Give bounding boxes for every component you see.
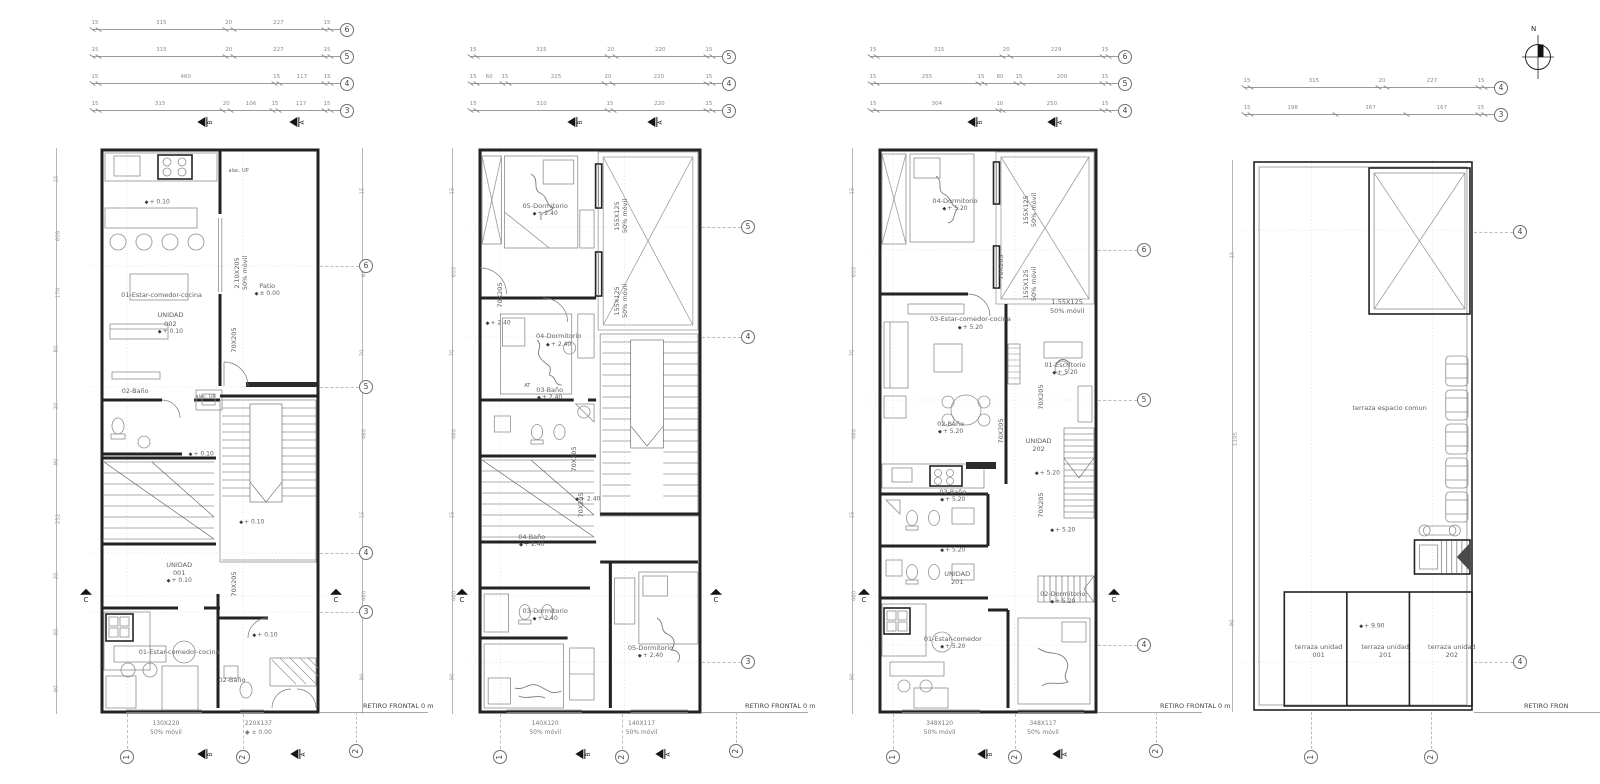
plan-text-label: ◆+ 0.10 — [252, 631, 277, 639]
grid-leader-line — [320, 266, 359, 267]
grid-bubble: 4 — [1118, 104, 1132, 118]
section-c-marker: C — [858, 589, 870, 604]
section-cut-marker: A — [647, 117, 662, 127]
grid-bubble: 4 — [1513, 225, 1527, 239]
section-cut-marker: A — [1052, 749, 1067, 759]
plan-text-label: ◆+ 0.10 — [145, 198, 170, 206]
plan-text-label: 70X205 — [997, 418, 1005, 443]
plan-text-label: 03-Estar-comedor-cocina◆+ 5.20 — [930, 316, 1011, 332]
section-c-marker: C — [1108, 589, 1120, 604]
grid-bubble: 4 — [1513, 655, 1527, 669]
plan-text-label: 04-Baño◆+ 2.40 — [518, 534, 545, 550]
plan-text-label: 03-Dormitorio◆+ 2.40 — [523, 607, 568, 623]
grid-leader-line — [1098, 645, 1137, 646]
grid-leader-line — [1311, 712, 1312, 749]
grid-bubble: 5 — [741, 220, 755, 234]
dimension-row: 15255158015200155 — [870, 74, 1108, 88]
retiro-frontal-label: RETIRO FRON — [1524, 702, 1568, 710]
grid-leader-line — [356, 712, 357, 743]
plan-text-label: 70X205 — [496, 283, 504, 308]
window-size-label: 130X22050% móvil — [150, 720, 182, 737]
grid-leader-line — [702, 337, 741, 338]
plan-text-label: terraza unidad001 — [1295, 643, 1343, 659]
lot-boundary-line — [1474, 712, 1600, 713]
grid-bubble: 1 — [886, 750, 900, 764]
plan-text-label: ◆+ 2.40 — [486, 320, 511, 328]
grid-bubble: 3 — [1494, 108, 1508, 122]
grid-bubble: 4 — [741, 330, 755, 344]
plan-text-label: 70X205 — [1037, 384, 1045, 409]
grid-bubble: 2 — [729, 744, 743, 758]
lot-boundary-line — [1098, 712, 1202, 713]
plan-text-label: 01-Escritorio◆+ 5.20 — [1044, 361, 1085, 377]
grid-leader-line — [702, 662, 741, 663]
grid-leader-line — [500, 714, 501, 749]
floor-plan-first-drawing — [478, 148, 702, 714]
plan-text-label: 02-Baño — [122, 387, 149, 395]
dimension-row: 1531015220153 — [470, 101, 712, 115]
plan-text-label: alac. UP — [196, 394, 216, 400]
section-cut-marker: B — [967, 117, 982, 127]
plan-text-label: UNIDAD002◆+ 0.10 — [157, 312, 183, 336]
window-size-label: 348X12050% móvil — [924, 720, 956, 737]
plan-text-label: terraza unidad202 — [1428, 643, 1476, 659]
lot-boundary-line — [320, 712, 428, 713]
plan-text-label: 04-Dormitorio◆+ 2.40 — [536, 333, 581, 349]
plan-text-label: ◆+ 0.10 — [189, 450, 214, 458]
lot-boundary-line — [702, 712, 808, 713]
window-size-label: 348X11750% móvil — [1027, 720, 1059, 737]
dimension-row: 1546015117154 — [92, 74, 330, 88]
plan-text-label: 155X12550% móvil — [613, 284, 629, 318]
grid-bubble: 3 — [340, 104, 354, 118]
grid-bubble: 3 — [359, 605, 373, 619]
grid-leader-line — [1098, 400, 1137, 401]
grid-bubble: 4 — [1137, 638, 1151, 652]
grid-bubble: 2 — [615, 750, 629, 764]
grid-leader-line — [1431, 712, 1432, 749]
plan-text-label: 04-Dormitorio◆+ 5.20 — [932, 197, 977, 213]
dimension-row: 15601522520220154 — [470, 74, 712, 88]
grid-bubble: 3 — [741, 655, 755, 669]
plan-text-label: alac. UP — [229, 168, 249, 174]
grid-bubble: 6 — [1137, 243, 1151, 257]
grid-bubble: 6 — [1118, 50, 1132, 64]
floor-plan-ground-drawing — [100, 148, 320, 714]
grid-leader-line — [243, 714, 244, 749]
grid-bubble: 2 — [236, 750, 250, 764]
plan-text-label: ◆+ 0.10 — [239, 518, 264, 526]
roof-plan: terraza espacio comun◆+ 9.90terraza unid… — [1252, 160, 1474, 712]
dimension-row: 153152010615117153 — [92, 101, 330, 115]
plan-text-label: 01-Estar-comedor◆+ 5.20 — [924, 635, 982, 651]
plan-text-label: 02-Baño — [219, 676, 246, 684]
plan-text-label: 1.55X12550% móvil — [1050, 298, 1084, 314]
plan-text-label: 02-Dormitorio◆+ 5.20 — [1040, 590, 1085, 606]
plan-text-label: ◆+ 5.20 — [1035, 470, 1060, 478]
retiro-frontal-label: RETIRO FRONTAL 0 m — [363, 702, 434, 710]
dimension-row: 1531520227154 — [1244, 78, 1484, 92]
plan-text-label: 155X12550% móvil — [613, 199, 629, 233]
grid-leader-line — [320, 387, 359, 388]
section-cut-marker: B — [977, 749, 992, 759]
grid-leader-line — [320, 612, 359, 613]
grid-leader-line — [1015, 714, 1016, 749]
grid-leader-line — [702, 227, 741, 228]
plan-text-label: 70X205 — [1037, 492, 1045, 517]
grid-bubble: 4 — [722, 77, 736, 91]
window-size-label: 140X11750% móvil — [626, 720, 658, 737]
dimension-row: 1531520229156 — [870, 47, 1108, 61]
plan-text-label: UNIDAD001◆+ 0.10 — [166, 561, 192, 585]
plan-text-label: 155X12550% móvil — [1022, 267, 1038, 301]
plan-text-label: Patio◆± 0.00 — [255, 282, 280, 298]
dimension-row: 1531520227156 — [92, 20, 330, 34]
grid-bubble: 5 — [340, 50, 354, 64]
grid-leader-line — [1098, 250, 1137, 251]
window-size-label: 220X137◆ ± 0.00 — [245, 720, 272, 737]
section-cut-marker: B — [567, 117, 582, 127]
section-c-marker: C — [710, 589, 722, 604]
grid-bubble: 4 — [1494, 81, 1508, 95]
grid-bubble: 3 — [722, 104, 736, 118]
plan-text-label: 2.10X20550% móvil — [233, 255, 249, 289]
vertical-dimension-strip: 15605704601546090 — [852, 148, 853, 714]
vertical-dimension-strip: 15119590 — [1232, 160, 1233, 712]
floor-plan-second-drawing — [878, 148, 1098, 714]
plan-text-label: 01-Estar-comedor-cocina — [139, 648, 220, 656]
section-cut-marker: A — [289, 117, 304, 127]
grid-bubble: 2 — [1149, 744, 1163, 758]
grid-bubble: 1 — [1304, 750, 1318, 764]
dimension-row: 1531520220155 — [470, 47, 712, 61]
plan-text-label: UNIDAD201 — [944, 570, 970, 586]
section-c-marker: C — [456, 589, 468, 604]
plan-text-label: terraza espacio comun — [1352, 404, 1426, 412]
grid-leader-line — [127, 714, 128, 749]
plan-text-label: 70X205 — [230, 571, 238, 596]
floor-plan-ground: ◆+ 0.1001-Estar-comedor-cocinaUNIDAD002◆… — [100, 148, 320, 714]
section-cut-marker: A — [655, 749, 670, 759]
grid-bubble: 5 — [722, 50, 736, 64]
plan-text-label: 155X12550% móvil — [1022, 193, 1038, 227]
section-cut-marker: A — [290, 749, 305, 759]
floor-plan-first: 05-Dormitorio◆+ 2.40155X12550% móvil70X2… — [478, 148, 702, 714]
plan-text-label: 70X205 — [570, 447, 578, 472]
dimension-row: 1530410250154 — [870, 101, 1108, 115]
vertical-dimension-strip: 15605704601546090 — [362, 148, 363, 714]
grid-bubble: 2 — [349, 744, 363, 758]
grid-bubble: 6 — [359, 259, 373, 273]
plan-text-label: ◆+ 5.20 — [1050, 526, 1075, 534]
grid-bubble: 1 — [120, 750, 134, 764]
section-c-marker: C — [80, 589, 92, 604]
grid-leader-line — [622, 714, 623, 749]
grid-leader-line — [893, 714, 894, 749]
grid-leader-line — [320, 553, 359, 554]
section-cut-marker: B — [197, 117, 212, 127]
section-c-marker: C — [330, 589, 342, 604]
north-label: N — [1531, 25, 1536, 33]
plan-text-label: 02-Baño◆+ 5.20 — [937, 420, 964, 436]
plan-text-label: 01-Estar-comedor-cocina — [121, 291, 202, 299]
retiro-frontal-label: RETIRO FRONTAL 0 m — [1160, 702, 1231, 710]
vertical-dimension-strip: 15608170802090252358590 — [56, 148, 57, 714]
grid-bubble: 5 — [1118, 77, 1132, 91]
grid-leader-line — [1474, 662, 1513, 663]
retiro-frontal-label: RETIRO FRONTAL 0 m — [745, 702, 816, 710]
plan-text-label: 03-Baño◆+ 2.40 — [536, 386, 563, 402]
north-compass: N — [1516, 32, 1560, 82]
floor-plan-second: 04-Dormitorio◆+ 5.20155X12550% móvil70X2… — [878, 148, 1098, 714]
grid-bubble: 6 — [340, 23, 354, 37]
plan-text-label: UNIDAD202 — [1026, 437, 1052, 453]
dimension-row: 15198167167153 — [1244, 105, 1484, 119]
grid-bubble: 5 — [1137, 393, 1151, 407]
section-cut-marker: B — [575, 749, 590, 759]
grid-bubble: 1 — [493, 750, 507, 764]
plan-text-label: 05-Dormitorio◆+ 2.40 — [628, 644, 673, 660]
grid-bubble: 4 — [359, 546, 373, 560]
plan-text-label: 70X205 — [577, 492, 585, 517]
plan-text-label: 70X205 — [230, 328, 238, 353]
plan-text-label: ◆+ 5.20 — [940, 546, 965, 554]
section-cut-marker: B — [197, 749, 212, 759]
grid-leader-line — [1156, 712, 1157, 743]
grid-bubble: 2 — [1008, 750, 1022, 764]
plan-text-label: terraza unidad201 — [1361, 643, 1409, 659]
dimension-row: 1531520227155 — [92, 47, 330, 61]
grid-bubble: 5 — [359, 380, 373, 394]
grid-leader-line — [1474, 232, 1513, 233]
vertical-dimension-strip: 15605704601546090 — [452, 148, 453, 714]
grid-bubble: 2 — [1424, 750, 1438, 764]
plan-text-label: 70X205 — [997, 254, 1005, 279]
north-arrow-icon — [1516, 32, 1560, 82]
plan-text-label: ◆+ 9.90 — [1359, 623, 1384, 631]
drawing-sheet: ◆+ 0.1001-Estar-comedor-cocinaUNIDAD002◆… — [0, 0, 1600, 784]
section-cut-marker: A — [1047, 117, 1062, 127]
plan-text-label: 05-Dormitorio◆+ 2.40 — [523, 202, 568, 218]
plan-text-label: AT — [524, 383, 530, 389]
grid-leader-line — [736, 712, 737, 743]
plan-text-label: 03-Baño◆+ 5.20 — [939, 488, 966, 504]
grid-bubble: 4 — [340, 77, 354, 91]
window-size-label: 140X12050% móvil — [529, 720, 561, 737]
